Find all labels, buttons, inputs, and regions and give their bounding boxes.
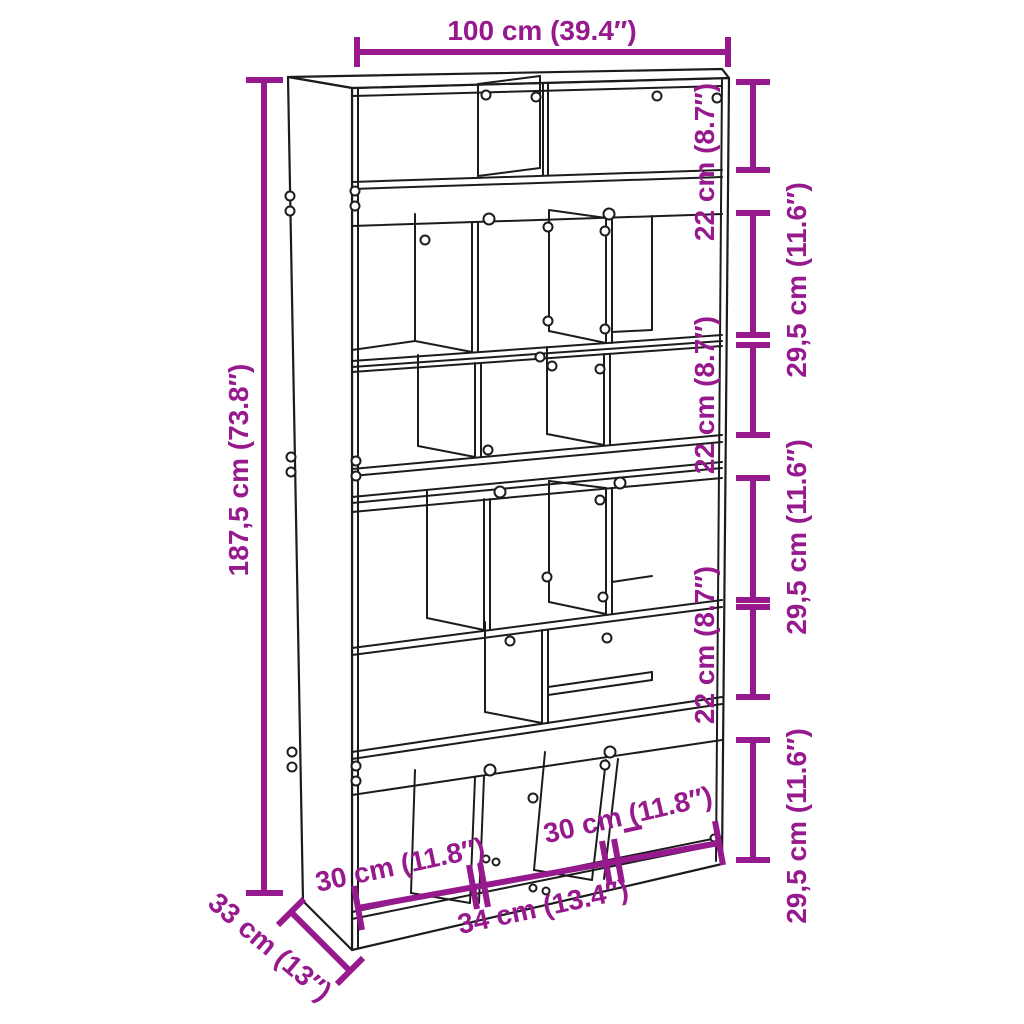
dim-label-right-5: 22 cm (8.7″) bbox=[689, 566, 720, 724]
bookshelf-dimension-diagram: 100 cm (39.4″) 187,5 cm (73.8″) 22 cm (8… bbox=[0, 0, 1024, 1024]
dim-label-right-2: 29,5 cm (11.6″) bbox=[781, 182, 812, 378]
dim-label-right-1: 22 cm (8.7″) bbox=[689, 83, 720, 241]
dim-label-left-height: 187,5 cm (73.8″) bbox=[223, 364, 254, 577]
dim-label-top-width: 100 cm (39.4″) bbox=[447, 15, 636, 46]
dim-label-right-4: 29,5 cm (11.6″) bbox=[781, 439, 812, 635]
dimension-diagram-canvas: 100 cm (39.4″) 187,5 cm (73.8″) 22 cm (8… bbox=[0, 0, 1024, 1024]
dim-label-right-3: 22 cm (8.7″) bbox=[689, 316, 720, 474]
dim-label-right-6: 29,5 cm (11.6″) bbox=[781, 728, 812, 924]
